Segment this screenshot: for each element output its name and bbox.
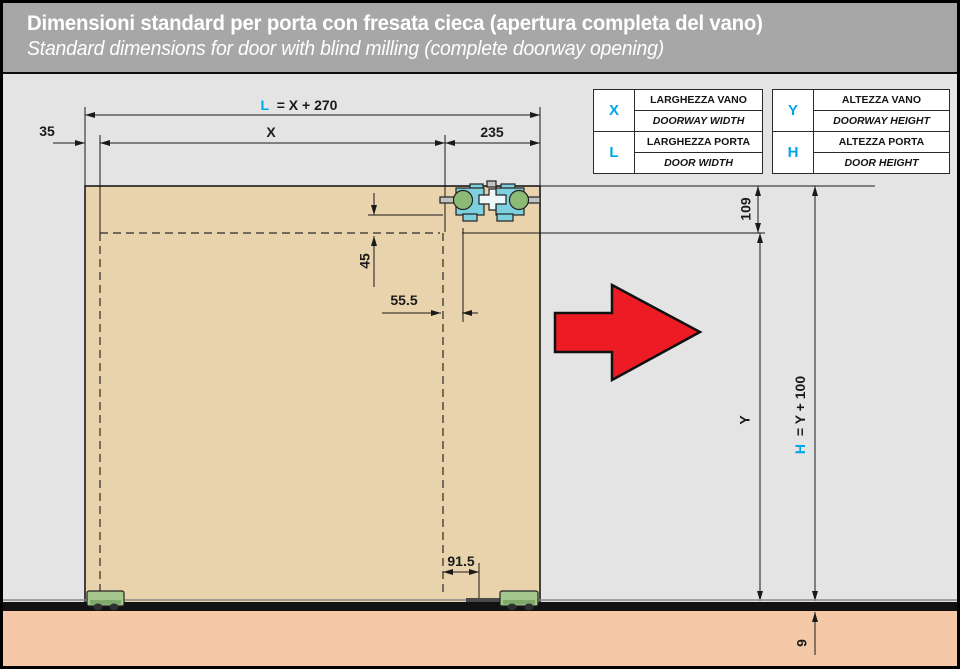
legend-label-door-width-it: LARGHEZZA PORTA — [635, 132, 763, 153]
carriage-tab-bottom-left — [463, 214, 477, 221]
floor-surface-bar — [3, 602, 957, 611]
carriage-wheel-right — [510, 191, 529, 210]
door-width-formula: = X + 270 — [277, 97, 338, 113]
legend-label-door-height-it: ALTEZZA PORTA — [814, 132, 950, 153]
page-frame: Dimensioni standard per porta con fresat… — [0, 0, 960, 669]
legend-width-table: X LARGHEZZA VANO DOORWAY WIDTH L LARGHEZ… — [593, 89, 763, 174]
door-width-symbol: L — [261, 97, 270, 113]
door-height-symbol: H — [792, 444, 808, 454]
legend-symbol-y: Y — [773, 90, 814, 132]
sliding-direction-arrow-icon — [555, 285, 700, 380]
floor-guide-left-base — [90, 600, 121, 605]
door-height-formula: = Y + 100 — [792, 376, 808, 436]
carriage-tab-bottom-right — [497, 214, 513, 221]
legend-label-doorway-height-it: ALTEZZA VANO — [814, 90, 950, 111]
dim-label-door-height: H = Y + 100 — [792, 376, 808, 454]
legend-label-doorway-width-en: DOORWAY WIDTH — [635, 111, 763, 132]
floor-guide-right-foot — [508, 604, 517, 611]
legend-label-door-height-en: DOOR HEIGHT — [814, 153, 950, 174]
dim-label-doorway-height: Y — [737, 415, 753, 425]
legend-symbol-l: L — [594, 132, 635, 174]
dim-label-doorway-width: X — [266, 124, 276, 140]
floor-guide-right-foot — [525, 604, 534, 611]
dim-label-door-width: L = X + 270 — [261, 97, 338, 113]
legend-label-door-width-en: DOOR WIDTH — [635, 153, 763, 174]
floor-guide-right-plate — [466, 598, 502, 602]
dim-label-floor-recess: 9 — [794, 639, 810, 647]
legend-symbol-h: H — [773, 132, 814, 174]
carriage-top-pin — [487, 181, 496, 187]
door-panel — [85, 186, 540, 603]
dim-label-floor-guide-offset: 91.5 — [447, 553, 474, 569]
floor-guide-left-foot — [94, 604, 103, 611]
legend-symbol-x: X — [594, 90, 635, 132]
dim-label-right-offset: 235 — [480, 124, 504, 140]
dim-label-left-offset: 35 — [39, 123, 55, 139]
floor-guide-left-foot — [110, 604, 119, 611]
legend-label-doorway-height-en: DOORWAY HEIGHT — [814, 111, 950, 132]
dim-label-carriage-vertical: 45 — [357, 253, 373, 269]
carriage-wheel-left — [454, 191, 473, 210]
floor-slab — [3, 611, 957, 666]
legend-height-table: Y ALTEZZA VANO DOORWAY HEIGHT H ALTEZZA … — [772, 89, 950, 174]
legend-label-doorway-width-it: LARGHEZZA VANO — [635, 90, 763, 111]
dim-label-top-inset: 109 — [738, 197, 754, 221]
dim-label-carriage-horizontal: 55.5 — [390, 292, 417, 308]
